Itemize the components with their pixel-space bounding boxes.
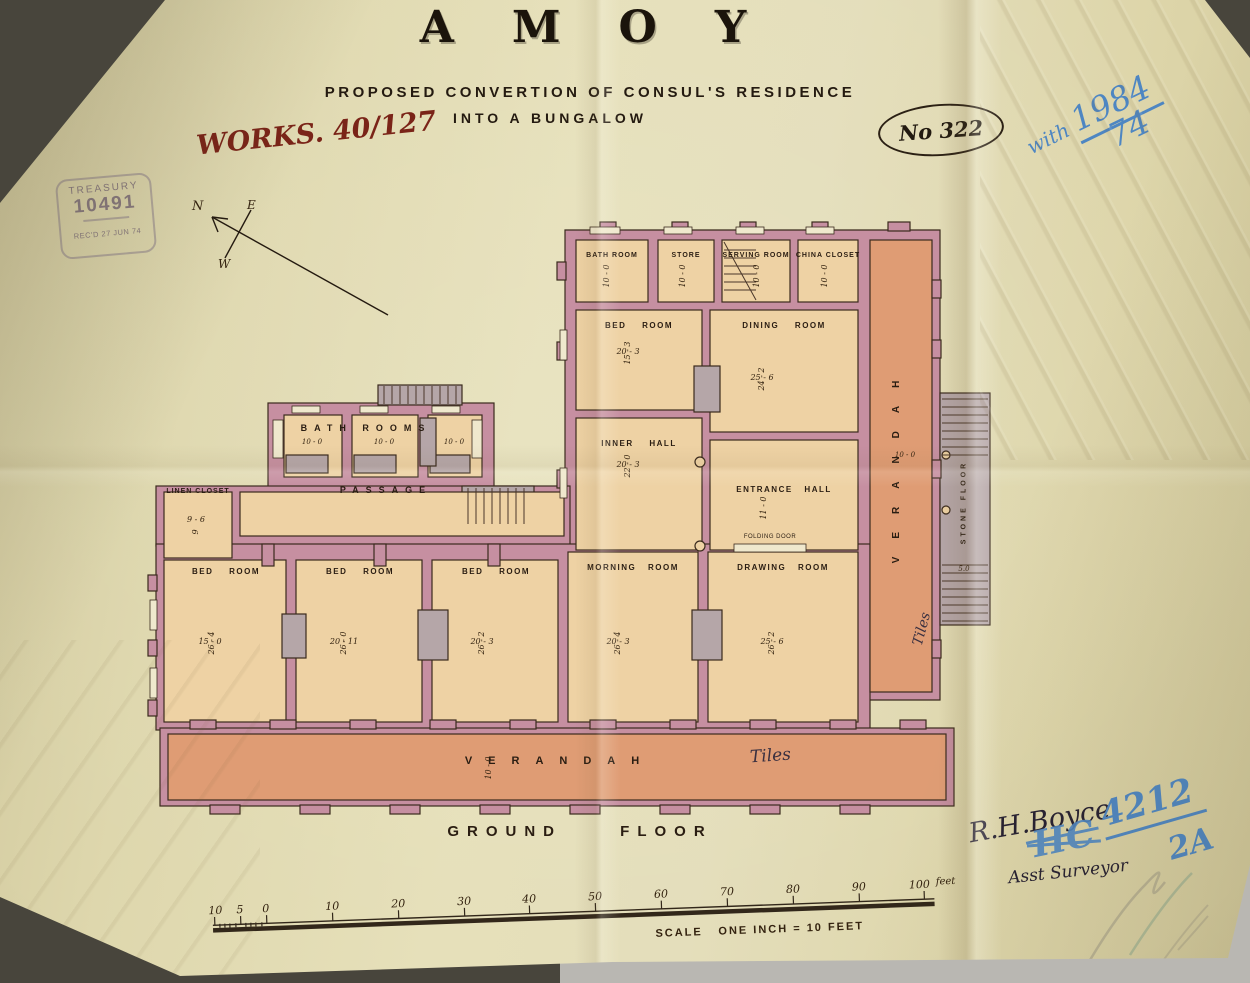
tiles-note-bottom: Tiles bbox=[749, 747, 791, 767]
dim-verandah-right: 10 - 0 bbox=[880, 452, 930, 459]
label-bed-room-upper: BED ROOM bbox=[576, 322, 702, 330]
label-bed-room-2: BED ROOM bbox=[298, 568, 422, 576]
dim-inner-hall-v: 22 - 0 bbox=[624, 446, 632, 486]
dim-entrance-hall: 11 - 0 bbox=[760, 488, 768, 528]
dim-china: 10 - 0 bbox=[821, 256, 829, 296]
svg-text:70: 70 bbox=[720, 885, 734, 899]
label-verandah-bottom: VERANDAH bbox=[440, 756, 680, 767]
label-bed-room-1: BED ROOM bbox=[166, 568, 286, 576]
dim-bath-c: 10 - 0 bbox=[424, 439, 484, 446]
room-morning bbox=[568, 552, 698, 722]
svg-text:20: 20 bbox=[390, 897, 405, 911]
dim-dining-v: 24 - 2 bbox=[758, 359, 766, 399]
svg-text:W: W bbox=[218, 257, 232, 271]
dim-verandah-bottom: 10 - 0 bbox=[485, 748, 493, 788]
verandah-bottom-floor bbox=[168, 734, 946, 800]
svg-text:ONE INCH = 10 FEET: ONE INCH = 10 FEET bbox=[718, 920, 864, 937]
label-inner-hall: INNER HALL bbox=[576, 440, 702, 448]
dim-serving: 10 - 0 bbox=[753, 256, 761, 296]
column bbox=[695, 457, 705, 467]
svg-text:5: 5 bbox=[236, 903, 243, 916]
column bbox=[695, 541, 705, 551]
label-entrance-hall: ENTRANCE HALL bbox=[710, 486, 858, 494]
dim-bed1-v: 26 - 4 bbox=[208, 623, 216, 663]
label-morning-room: MORNING ROOM bbox=[566, 564, 700, 572]
svg-text:10: 10 bbox=[208, 904, 222, 918]
svg-text:100: 100 bbox=[909, 878, 930, 892]
bath-tub bbox=[286, 455, 328, 473]
pencil-marks bbox=[1090, 873, 1208, 965]
svg-text:N: N bbox=[191, 199, 204, 214]
door-assembly bbox=[418, 610, 448, 660]
svg-text:SCALE: SCALE bbox=[655, 926, 703, 940]
compass-rose bbox=[212, 210, 388, 315]
dim-bath-top: 10 - 0 bbox=[603, 256, 611, 296]
folding-door-opening bbox=[734, 544, 806, 552]
floor-title: GROUND FLOOR bbox=[420, 824, 740, 839]
paper-sheet: N E W 10 5 0 10 20 30 40 bbox=[0, 0, 1250, 983]
svg-text:10: 10 bbox=[325, 899, 339, 913]
label-bath-room-top: BATH ROOM bbox=[576, 252, 648, 259]
label-verandah-right: VERANDAH bbox=[892, 298, 902, 628]
label-dining-room: DINING ROOM bbox=[710, 322, 858, 330]
dim-bath-a: 10 - 0 bbox=[282, 439, 342, 446]
label-passage: PASSAGE bbox=[300, 486, 472, 495]
dim-bath-b: 10 - 0 bbox=[354, 439, 414, 446]
label-bed-room-3: BED ROOM bbox=[434, 568, 558, 576]
room-bath-top bbox=[576, 240, 648, 302]
scanned-drawing: N E W 10 5 0 10 20 30 40 bbox=[0, 0, 1250, 983]
blue-ref-word: with bbox=[1023, 118, 1073, 159]
svg-text:80: 80 bbox=[786, 883, 800, 897]
dim-drawing-v: 26 - 2 bbox=[768, 623, 776, 663]
label-bath-rooms-wing: BATH ROOMS bbox=[278, 424, 454, 433]
label-folding-door: FOLDING DOOR bbox=[734, 534, 806, 540]
column bbox=[942, 506, 950, 514]
treasury-stamp: TREASURY 10491 REC'D 27 JUN 74 bbox=[55, 172, 158, 260]
label-drawing-room: DRAWING ROOM bbox=[706, 564, 860, 572]
label-linen-closet: LINEN CLOSET bbox=[160, 488, 236, 495]
door-assembly bbox=[692, 610, 722, 660]
svg-text:50: 50 bbox=[588, 890, 602, 904]
room-passage bbox=[240, 492, 564, 536]
svg-text:40: 40 bbox=[521, 892, 536, 906]
svg-text:feet: feet bbox=[935, 876, 957, 888]
stamp-received-date: REC'D 27 JUN 74 bbox=[61, 225, 153, 242]
dim-morning-v: 26 - 4 bbox=[614, 623, 622, 663]
door-assembly bbox=[282, 614, 306, 658]
label-stone-floor: STONE FLOOR bbox=[961, 443, 968, 563]
bath-tub bbox=[354, 455, 396, 473]
compass-labels: N E W bbox=[191, 198, 256, 271]
door-assembly bbox=[694, 366, 720, 412]
dim-stone-stairs: 5.0 bbox=[944, 566, 984, 573]
dim-linen-v: 9 bbox=[192, 512, 200, 552]
svg-text:60: 60 bbox=[654, 887, 668, 901]
dim-bed3-v: 26 - 2 bbox=[478, 623, 486, 663]
svg-text:0: 0 bbox=[262, 902, 269, 915]
room-inner-hall bbox=[576, 418, 702, 550]
svg-text:30: 30 bbox=[457, 895, 471, 909]
porch-steps bbox=[378, 385, 462, 405]
dim-bed-upper-v: 15 - 3 bbox=[624, 333, 632, 373]
drawing-title: AMOY bbox=[372, 2, 852, 53]
svg-text:90: 90 bbox=[852, 880, 866, 894]
dim-store: 10 - 0 bbox=[679, 256, 687, 296]
scale-bar: 10 5 0 10 20 30 40 50 60 70 80 90 100 fe… bbox=[208, 876, 958, 956]
drawing-subtitle-line1: PROPOSED CONVERTION OF CONSUL'S RESIDENC… bbox=[300, 84, 880, 101]
dim-bed2-v: 26 - 0 bbox=[340, 623, 348, 663]
svg-text:E: E bbox=[246, 198, 256, 212]
